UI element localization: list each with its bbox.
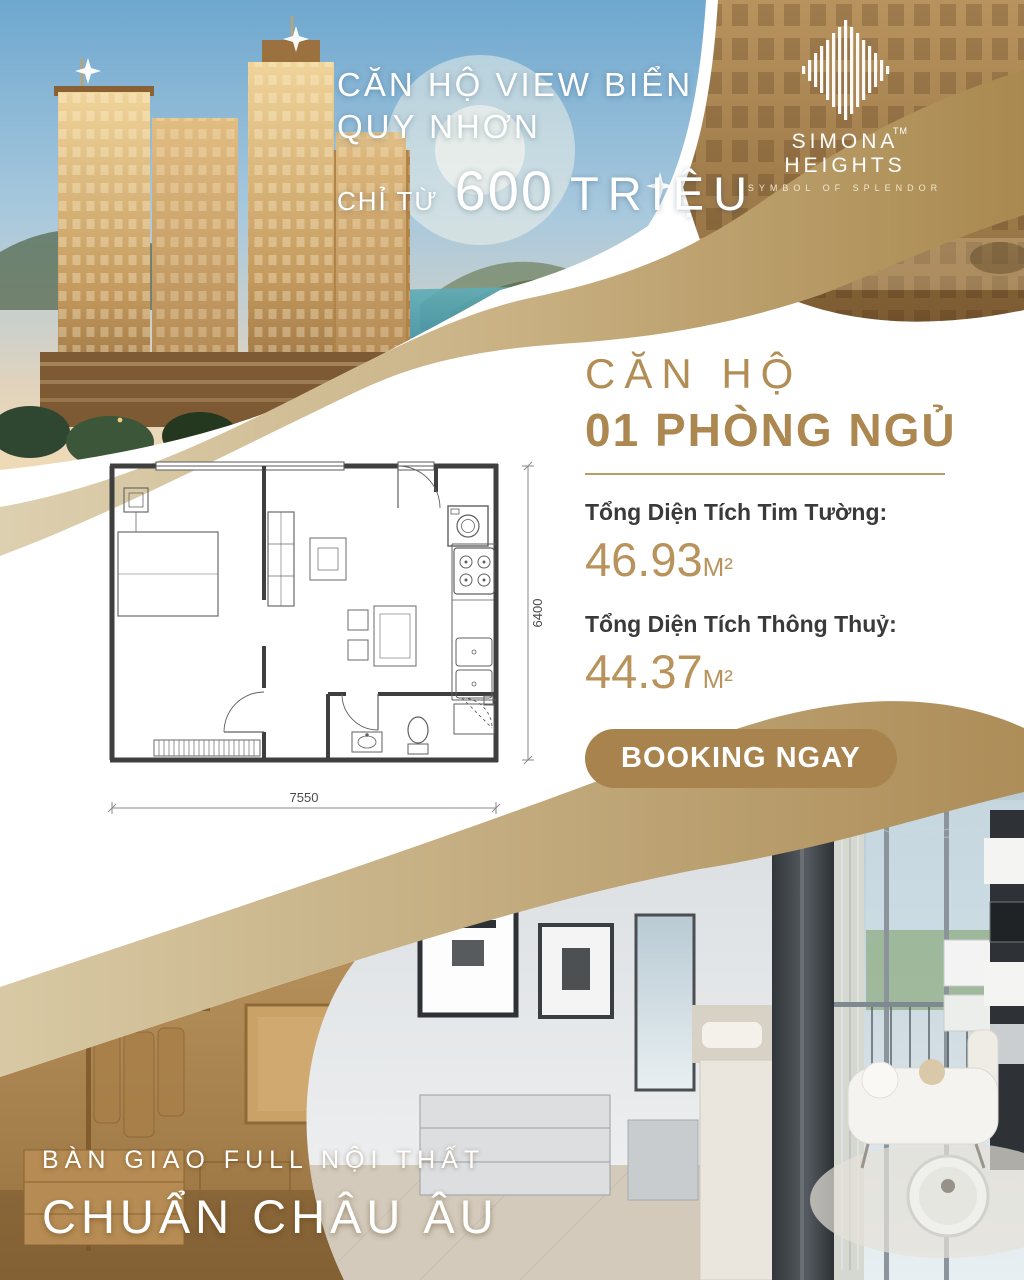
footer-caption: BÀN GIAO FULL NỘI THẤT CHUẨN CHÂU ÂU <box>42 1146 499 1244</box>
price-value: 600 <box>455 158 554 223</box>
gross-area-value: 46.93M² <box>585 532 997 587</box>
gross-area-number: 46.93 <box>585 533 703 586</box>
divider <box>585 473 945 475</box>
area-unit: M² <box>703 664 733 694</box>
gross-area-label: Tổng Diện Tích Tim Tường: <box>585 499 997 526</box>
poster: CĂN HỘ VIEW BIỂN QUY NHƠN CHỈ TỪ 600 TRI… <box>0 0 1024 1280</box>
brand-tagline: SYMBOL OF SPLENDOR <box>742 183 948 193</box>
net-area-label: Tổng Diện Tích Thông Thuỷ: <box>585 611 997 638</box>
floor-plan: 7550 6400 <box>96 448 550 828</box>
net-area-number: 44.37 <box>585 645 703 698</box>
booking-button[interactable]: BOOKING NGAY <box>585 729 897 788</box>
headline-line2: QUY NHƠN <box>337 106 756 148</box>
price-row: CHỈ TỪ 600 TRIỆU <box>337 158 756 223</box>
area-unit: M² <box>703 552 733 582</box>
price-prefix: CHỈ TỪ <box>337 186 439 217</box>
brand-logo: TM SIMONA HEIGHTS SYMBOL OF SPLENDOR <box>742 16 948 193</box>
plan-width-dimension: 7550 <box>290 790 319 805</box>
trademark-symbol: TM <box>893 126 908 136</box>
brand-diamond-icon <box>797 16 893 124</box>
footer-line2: CHUẨN CHÂU ÂU <box>42 1189 499 1244</box>
headline-line1: CĂN HỘ VIEW BIỂN <box>337 64 756 106</box>
net-area-value: 44.37M² <box>585 644 997 699</box>
plan-height-dimension: 6400 <box>530 599 545 628</box>
hero-headline: CĂN HỘ VIEW BIỂN QUY NHƠN CHỈ TỪ 600 TRI… <box>337 64 756 223</box>
price-unit: TRIỆU <box>570 166 756 221</box>
unit-title: CĂN HỘ <box>585 350 997 398</box>
unit-subtitle: 01 PHÒNG NGỦ <box>585 403 997 457</box>
unit-info: CĂN HỘ 01 PHÒNG NGỦ Tổng Diện Tích Tim T… <box>585 350 997 788</box>
brand-name: SIMONA HEIGHTS <box>742 130 948 178</box>
footer-line1: BÀN GIAO FULL NỘI THẤT <box>42 1146 499 1175</box>
